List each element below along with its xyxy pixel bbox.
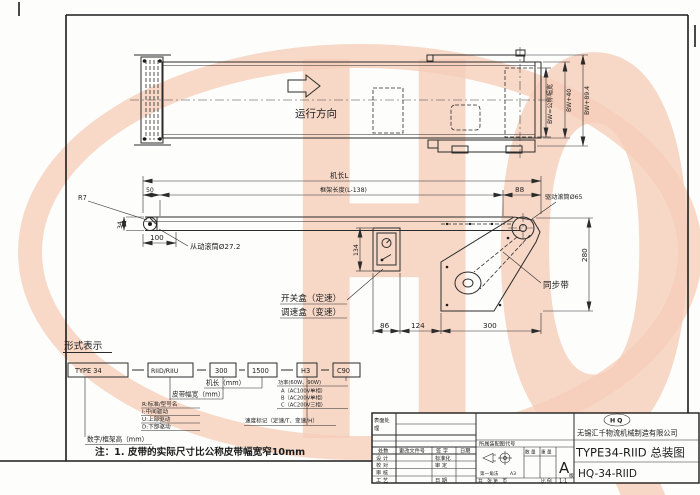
form-box-model: RIID/RIIU	[151, 368, 178, 375]
dim-300: 300	[483, 321, 497, 330]
row-approve: 审 定	[435, 461, 447, 469]
projection-label: 第一角法	[480, 470, 499, 477]
form-box-length: 1500	[252, 367, 269, 375]
machine-length-label: 机长（mm）	[206, 378, 245, 387]
option-r: R:标准/型号名	[142, 400, 177, 408]
drawing-sheet: HQ 运行方向	[0, 0, 700, 495]
switch-box-label: 开关盒（定速）	[281, 292, 341, 304]
assembly-code-label: 所属装配图代号	[479, 440, 515, 448]
option-i: I:中间驱动	[142, 408, 168, 416]
dim-124: 124	[411, 321, 425, 330]
revision-sub: 版	[569, 472, 574, 479]
dim-34: 34	[117, 221, 124, 229]
dim-134: 134	[353, 244, 360, 256]
assembly-drawing: HQ 运行方向	[0, 0, 700, 495]
power-option-c: C（AC200V三相）	[281, 401, 326, 409]
sheet-count-label: 共 张 第 页	[478, 477, 507, 484]
dim-280: 280	[580, 248, 589, 262]
col-change-doc: 更改文件号	[399, 447, 425, 455]
note-text: 注：1. 皮带的实际尺寸比公称皮带幅宽窄10mm	[95, 446, 305, 458]
direction-label: 运行方向	[295, 107, 337, 120]
surface-treatment-label2: 理	[374, 425, 380, 432]
dim-r7: R7	[78, 194, 87, 202]
drive-roller-label: 驱动滚筒Ø65	[545, 193, 583, 201]
sheet-size: A3	[510, 471, 516, 477]
dim-86: 86	[380, 321, 390, 330]
dim-bw-label: BW=公称幅宽	[546, 84, 554, 124]
power-option-b: B（AC200V单相）	[281, 394, 326, 402]
col-date: 日期	[460, 448, 470, 455]
row-date: 日 期	[435, 477, 447, 484]
title-block: 表面处 理 处数 更改文件号 签 字 日期 设 计 校 对 审 核 工 艺 标准…	[372, 413, 699, 485]
company-logo-text: HQ	[610, 418, 624, 425]
col-count: 处数	[378, 447, 389, 455]
speed-box-label: 调速盒（变速）	[281, 306, 341, 318]
form-box-type: TYPE 34	[74, 367, 102, 375]
sync-belt-label: 同步带	[543, 280, 569, 291]
form-box-speed: H3	[301, 367, 310, 375]
option-u: U:上部驱动	[142, 415, 171, 423]
drawing-number: HQ-34-RIID	[578, 468, 637, 480]
dim-bw40-label: BW+40	[566, 89, 573, 112]
row-audit: 审 核	[376, 469, 388, 477]
dim-machine-length: 机长L	[330, 171, 348, 180]
drawing-title: TYPE34-RIID 总装图	[575, 446, 685, 460]
qty-label: 数 量	[525, 449, 536, 456]
option-d: D:下部驱动	[142, 423, 171, 431]
power-option-a: A（AC100V单相）	[281, 387, 326, 395]
surface-treatment-label: 表面处	[374, 416, 390, 424]
row-standardization: 标准化	[435, 454, 451, 462]
dim-frame-length: 框架长度(L-138)	[320, 186, 367, 194]
form-box-width: 300	[215, 367, 228, 375]
dim-bw89-label: BW+89.4	[584, 86, 591, 115]
scale-value: 1:1	[559, 479, 567, 485]
dim-50: 50	[146, 187, 154, 194]
dim-88: 88	[515, 185, 525, 194]
company-name: 无锡汇千物流机械制造有限公司	[577, 429, 678, 438]
belt-width-label: 皮带幅宽（mm）	[172, 390, 224, 399]
col-signature: 签 字	[436, 447, 448, 455]
form-box-power: C90	[337, 367, 350, 375]
form-title: 形式表示	[64, 340, 103, 352]
frame-height-label: 数字/框架高（mm）	[87, 435, 148, 444]
speed-mark-label: 速度标记（定速/T、变速/H）	[245, 417, 318, 425]
scale-label: 比 例	[541, 477, 552, 484]
dim-100: 100	[150, 233, 164, 242]
driven-roller-label: 从动滚筒Ø27.2	[190, 242, 240, 251]
power-title: 功率(60W、90W)	[278, 378, 321, 386]
row-design: 设 计	[376, 454, 388, 462]
weight-label: 重 量	[541, 449, 552, 456]
row-check: 校 对	[376, 461, 388, 469]
row-process: 工 艺	[376, 477, 388, 484]
